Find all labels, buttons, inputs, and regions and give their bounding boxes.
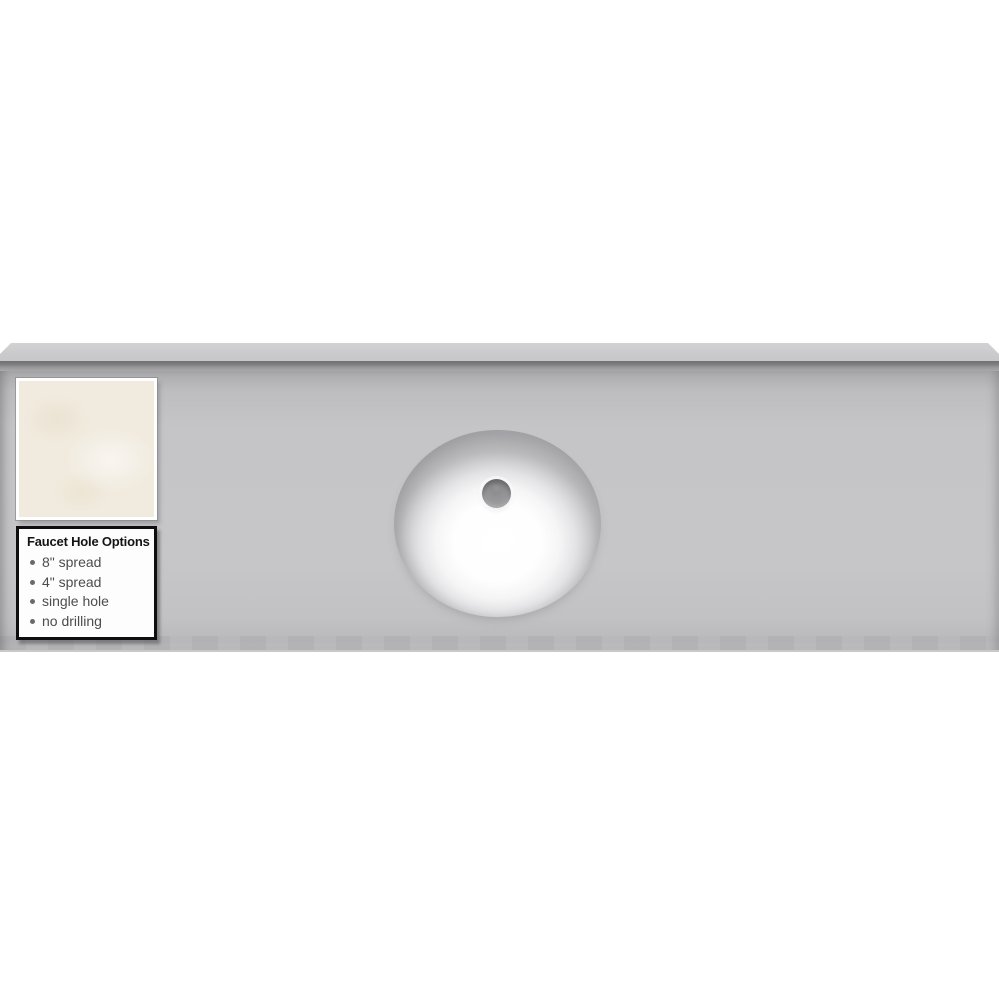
bullet-icon xyxy=(30,599,35,604)
option-label: no drilling xyxy=(42,612,102,632)
product-image: Faucet Hole Options 8" spread 4" spread … xyxy=(0,0,999,1000)
option-label: 4" spread xyxy=(42,573,101,593)
option-label: single hole xyxy=(42,592,109,612)
countertop-edge-seam xyxy=(0,361,999,371)
drain-hole-icon xyxy=(482,479,511,508)
faucet-hole-options-panel: Faucet Hole Options 8" spread 4" spread … xyxy=(16,526,157,640)
option-item: single hole xyxy=(27,592,150,612)
option-label: 8" spread xyxy=(42,553,101,573)
options-list: 8" spread 4" spread single hole no drill… xyxy=(27,553,150,631)
material-swatch xyxy=(16,378,157,520)
option-item: no drilling xyxy=(27,612,150,632)
sink-basin xyxy=(394,430,601,617)
bullet-icon xyxy=(30,580,35,585)
countertop-top-edge xyxy=(0,343,999,361)
bullet-icon xyxy=(30,560,35,565)
bullet-icon xyxy=(30,619,35,624)
option-item: 8" spread xyxy=(27,553,150,573)
option-item: 4" spread xyxy=(27,573,150,593)
panel-title: Faucet Hole Options xyxy=(27,533,150,550)
